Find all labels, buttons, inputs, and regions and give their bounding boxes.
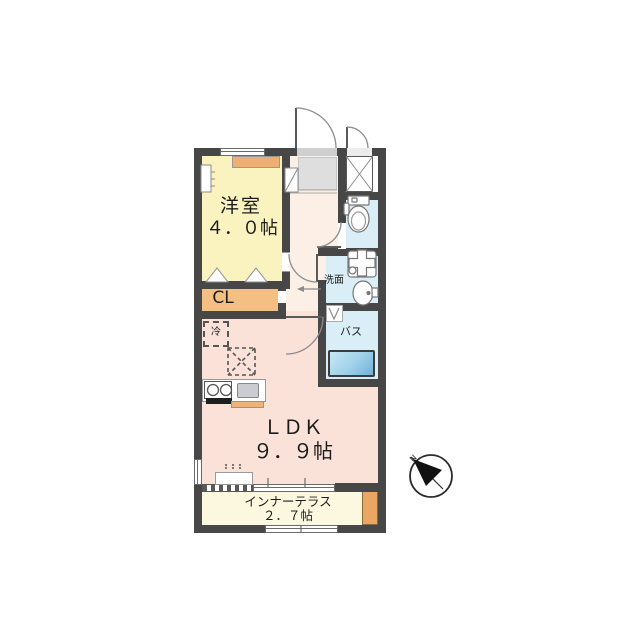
western-room-label: 洋室 bbox=[201, 196, 281, 217]
ldk-terrace-louver-strip bbox=[202, 484, 253, 492]
westernroom-top-window bbox=[220, 148, 265, 156]
pipe-space-box bbox=[346, 156, 373, 192]
ldk-size-label: ９．９帖 bbox=[223, 440, 363, 462]
terrace-bottom-window-midline bbox=[266, 528, 337, 529]
storage-door bbox=[347, 127, 368, 148]
terrace-bottom-window bbox=[265, 525, 338, 533]
wall-bath-bottom bbox=[318, 379, 386, 387]
washroom-label: 洗面 bbox=[319, 275, 349, 286]
wall-washroom-bath-left bbox=[318, 280, 326, 387]
westernroom-top-window-midline bbox=[221, 151, 264, 152]
entrance-door bbox=[296, 108, 336, 148]
ldk-terrace-sliding-window-midline bbox=[254, 487, 334, 488]
westernroom-door-opening bbox=[282, 252, 290, 272]
toilet-floor bbox=[346, 192, 378, 255]
bathtub bbox=[328, 350, 375, 377]
closet-label: CL bbox=[204, 289, 242, 308]
westernroom-shelf bbox=[232, 156, 280, 168]
refrigerator-label: 冷 bbox=[203, 327, 229, 338]
ldk-left-window bbox=[194, 459, 202, 485]
entrance-floor bbox=[298, 157, 337, 190]
wall-closet-bottom bbox=[194, 311, 286, 319]
ldk-terrace-sliding-window bbox=[253, 484, 335, 492]
kitchen-orange-strip bbox=[231, 401, 264, 408]
kitchen-stove bbox=[204, 381, 232, 399]
ldk-left-window-midline bbox=[197, 460, 198, 484]
bath-folding-door-box bbox=[326, 305, 343, 322]
compass-north-label: N bbox=[408, 453, 419, 464]
wall-outer-right bbox=[378, 148, 386, 533]
kitchen-sink bbox=[237, 383, 259, 398]
inner-terrace-size-label: ２．７帖 bbox=[208, 509, 368, 523]
floor-plan-canvas: N 洋室 ４．０帖 CL 冷 洗面 バス ＬＤＫ ９．９帖 インナーテラス ２．… bbox=[0, 0, 640, 640]
ldk-low-counter bbox=[215, 472, 253, 485]
wall-washroom-left-stub bbox=[318, 246, 326, 256]
wall-pipespace-bottom bbox=[338, 192, 378, 200]
storage-door-sill bbox=[347, 148, 372, 156]
compass: N bbox=[408, 453, 452, 497]
wall-washroom-top bbox=[326, 248, 378, 256]
entrance-door-sill bbox=[297, 148, 337, 156]
ldk-label: ＬＤＫ bbox=[233, 416, 353, 438]
inner-terrace-label: インナーテラス bbox=[208, 495, 368, 509]
bath-label: バス bbox=[333, 326, 369, 338]
closet-wall-opening bbox=[278, 291, 286, 303]
kitchen-grill-bar bbox=[206, 398, 232, 404]
western-room-size-label: ４．０帖 bbox=[192, 219, 292, 239]
wall-ldk-terrace-right bbox=[335, 483, 386, 492]
toilet-door-opening bbox=[338, 223, 346, 249]
